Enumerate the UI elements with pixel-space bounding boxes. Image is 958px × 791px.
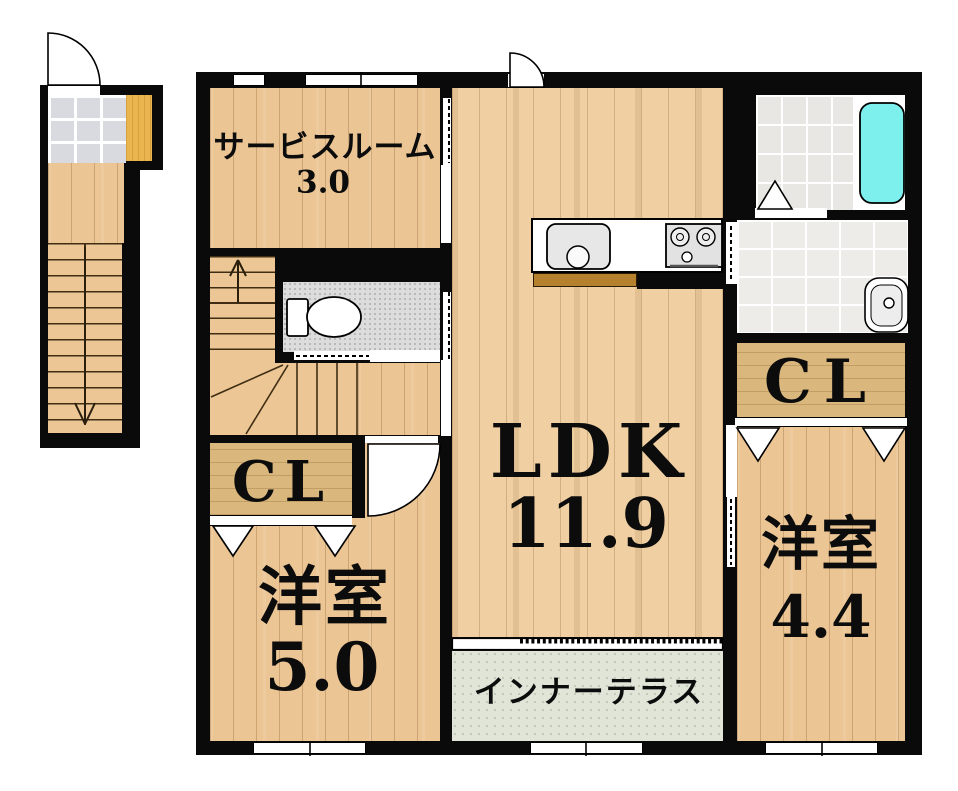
bedroom-right-door-track-strip — [727, 497, 735, 567]
outdoor-stairs-center-line — [84, 243, 86, 425]
service-door-opening — [441, 165, 451, 243]
ldk-label: LDK — [490, 415, 689, 489]
bedroom-left-area: 5.0 — [265, 634, 380, 700]
bedroom-right-area: 4.4 — [771, 588, 872, 646]
bedroom-right-label: 洋室 — [761, 515, 881, 573]
toilet-door-sill — [370, 350, 440, 362]
indoor-stairs-lower — [210, 363, 358, 435]
closet-right-door-band — [735, 417, 907, 427]
toilet-room-floor — [283, 282, 440, 352]
bedroom-right-floor — [737, 418, 905, 741]
service-room-area: 3.0 — [296, 168, 350, 199]
ldk-area: 11.9 — [503, 490, 669, 558]
bedroom-left-label: 洋室 — [258, 566, 392, 630]
bathtub-surround — [853, 95, 905, 210]
bedroom-left-door-opening — [365, 436, 438, 443]
service-room-label: サービスルーム — [213, 133, 436, 164]
closet-left-wall-top — [210, 435, 368, 443]
bathroom-door-sill — [755, 208, 827, 218]
hall-ldk-door-track-strip — [443, 292, 451, 360]
kitchen-counter-edge — [533, 273, 637, 287]
entrance-door-opening — [48, 86, 100, 97]
bedroom-right-window — [765, 742, 878, 754]
ldk-entrance-opening — [508, 74, 544, 87]
closet-left-wall-right — [352, 435, 365, 518]
stair-landing-floor — [48, 163, 124, 243]
washroom-floor — [737, 220, 908, 333]
kitchen-wall-stub — [637, 273, 723, 289]
bedroom-left-window — [253, 742, 366, 754]
entrance-mat — [126, 95, 152, 161]
entrance-door-swing-icon — [48, 33, 100, 85]
service-window-large — [305, 74, 418, 86]
bedroom-right-door-opening — [726, 425, 737, 497]
washroom-door-opening — [726, 222, 737, 284]
terrace-label: インナーテラス — [474, 678, 704, 709]
toilet-door-track-strip — [294, 351, 370, 360]
closet-left-door-band — [210, 515, 352, 526]
service-window-small — [233, 74, 265, 86]
closet-right-label: CL — [764, 352, 878, 412]
service-door-track-strip — [443, 98, 451, 165]
floor-plan: サービスルーム 3.0 LDK 11.9 洋室 5.0 洋室 4.4 CL CL… — [0, 0, 958, 791]
stove-grill — [668, 249, 720, 264]
terrace-window — [530, 742, 643, 754]
indoor-stairs-upper — [210, 256, 275, 363]
closet-left-label: CL — [232, 454, 332, 510]
entrance-tile-floor — [48, 95, 126, 163]
hallway-floor — [358, 363, 440, 435]
bathroom-floor — [756, 95, 853, 210]
kitchen-counter — [531, 218, 723, 273]
hall-ldk-door-opening — [441, 360, 451, 436]
